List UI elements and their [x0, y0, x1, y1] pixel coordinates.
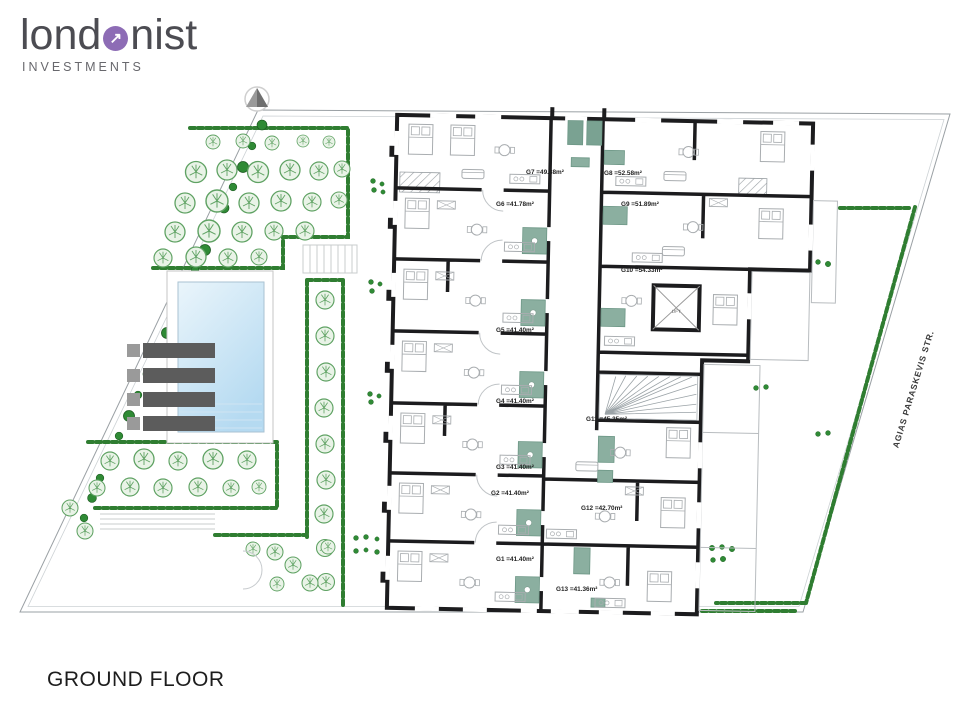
apartment-label-g12: G12 =42.70m² [581, 505, 622, 512]
apartment-label-g6: G6 =41.78m² [496, 201, 534, 208]
apartment-label-g9: G9 =51.89m² [621, 201, 659, 208]
street-label: AGIAS PARASKEVIS STR. [890, 329, 935, 449]
apartment-label-g2: G2 =41.40m² [491, 490, 529, 497]
apartment-label-g8: G8 =52.58m² [604, 170, 642, 177]
site-plan: LIFT [0, 0, 960, 720]
apartment-label-g11: G11 =45.35m² [586, 416, 627, 423]
apartment-label-g10: G10 =54.33m² [621, 267, 662, 274]
apartment-label-g4: G4 =41.40m² [496, 398, 534, 405]
apartment-label-g3: G3 =41.40m² [496, 464, 534, 471]
apartment-label-g7: G7 =49.88m² [526, 169, 564, 176]
apartment-label-g5: G5 =41.40m² [496, 327, 534, 334]
apartment-label-g1: G1 =41.40m² [496, 556, 534, 563]
balcony-hatch [739, 178, 767, 195]
apartment-label-g13: G13 =41.36m² [556, 586, 597, 593]
lift-label: LIFT [672, 309, 681, 314]
lift: LIFT [653, 285, 700, 330]
page: lond ↗ nist INVESTMENTS GROUND FLOOR [0, 0, 960, 720]
north-arrow-icon [245, 87, 269, 111]
